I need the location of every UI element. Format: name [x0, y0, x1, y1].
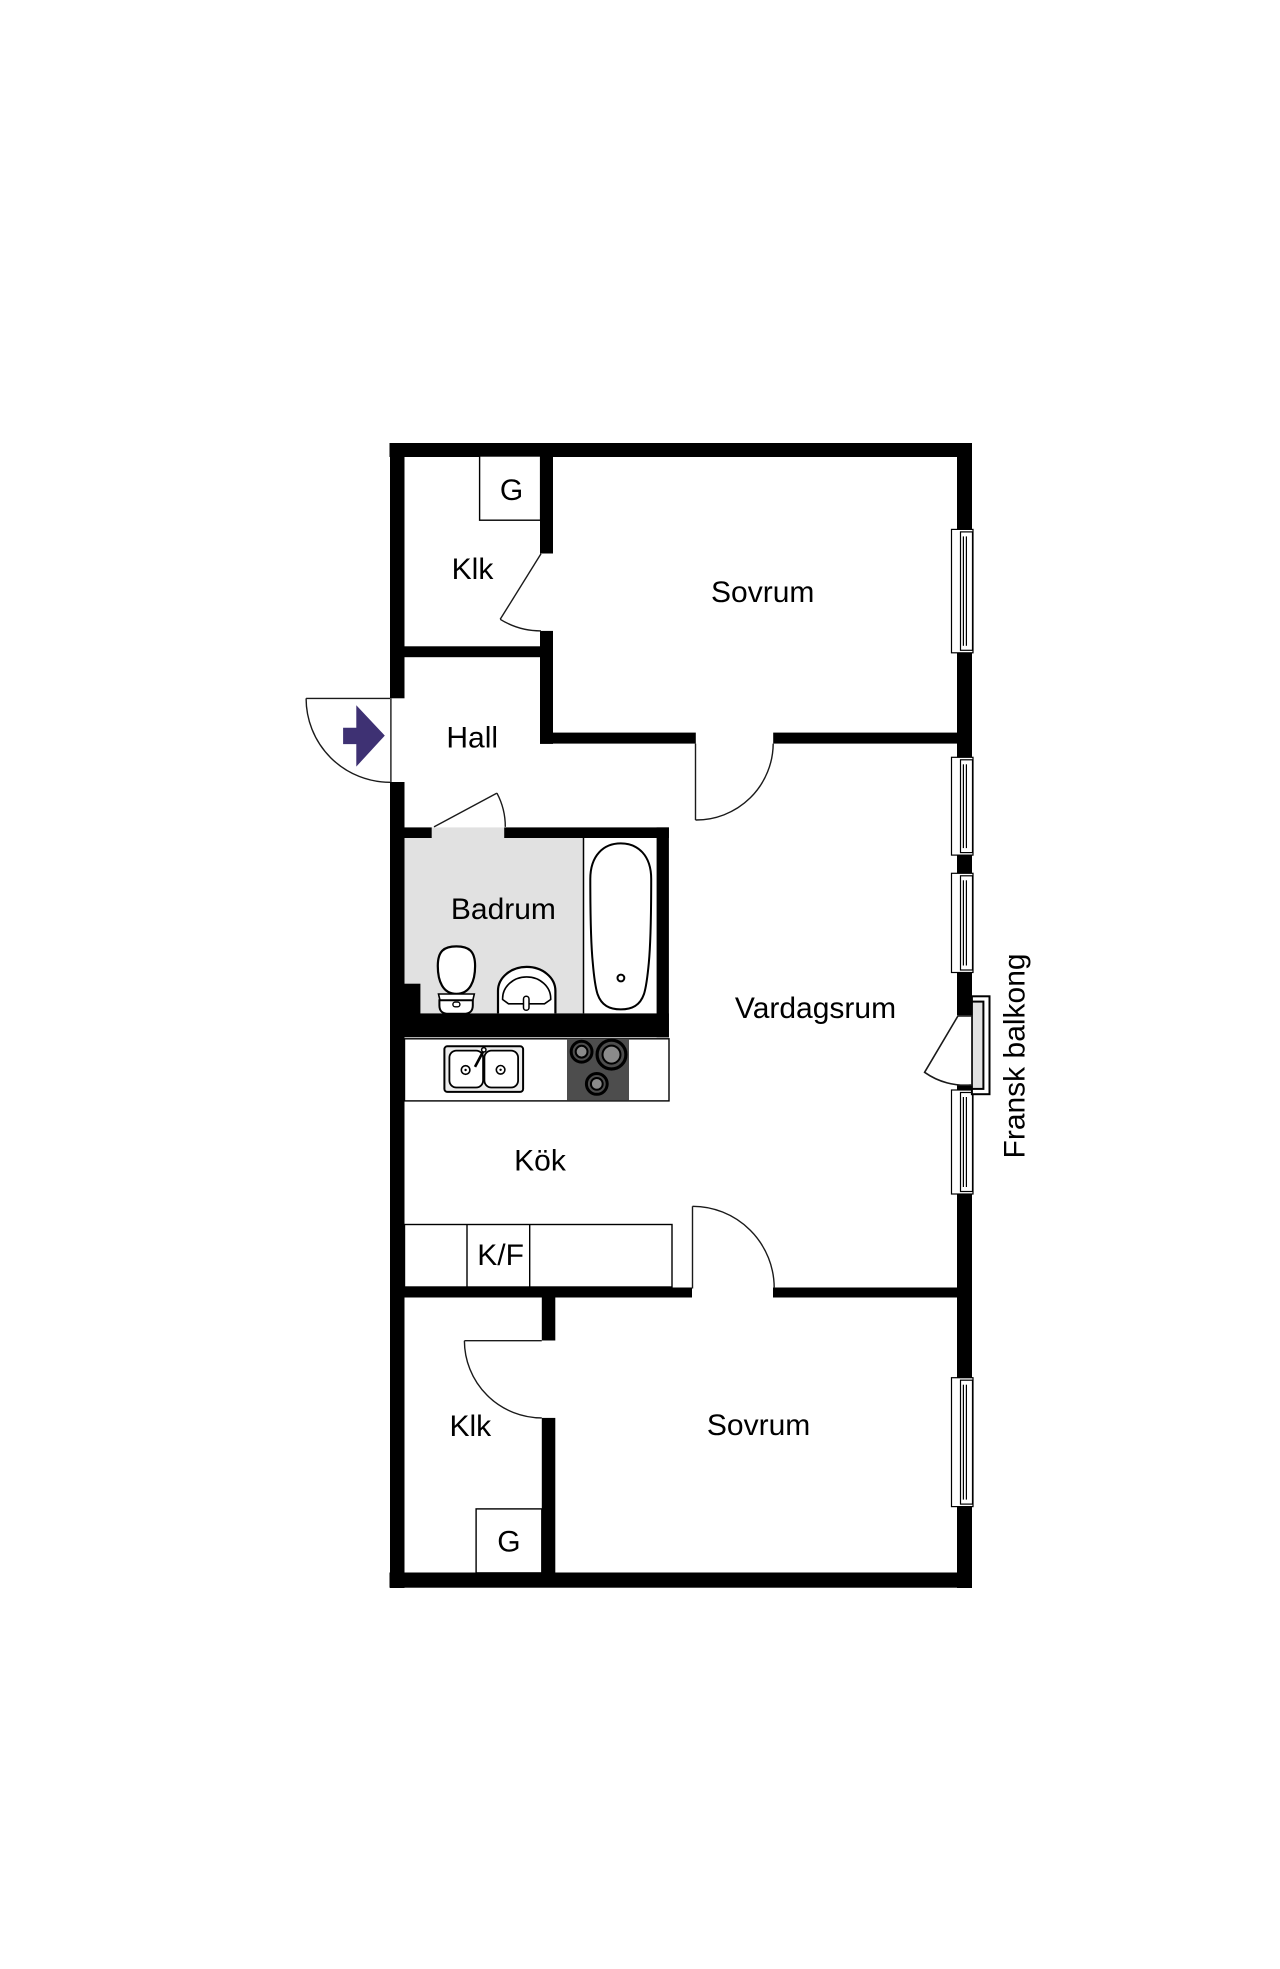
- svg-text:Fransk balkong: Fransk balkong: [999, 953, 1032, 1158]
- svg-text:Klk: Klk: [449, 1410, 492, 1443]
- svg-text:Klk: Klk: [452, 553, 495, 586]
- svg-text:Sovrum: Sovrum: [707, 1409, 810, 1442]
- svg-text:G: G: [497, 1526, 520, 1559]
- svg-text:Badrum: Badrum: [451, 893, 556, 926]
- svg-text:Vardagsrum: Vardagsrum: [735, 992, 896, 1025]
- svg-text:Sovrum: Sovrum: [711, 576, 814, 609]
- svg-text:K/F: K/F: [477, 1239, 524, 1272]
- svg-text:G: G: [500, 474, 523, 507]
- svg-text:Kök: Kök: [514, 1145, 567, 1178]
- svg-text:Hall: Hall: [446, 722, 498, 755]
